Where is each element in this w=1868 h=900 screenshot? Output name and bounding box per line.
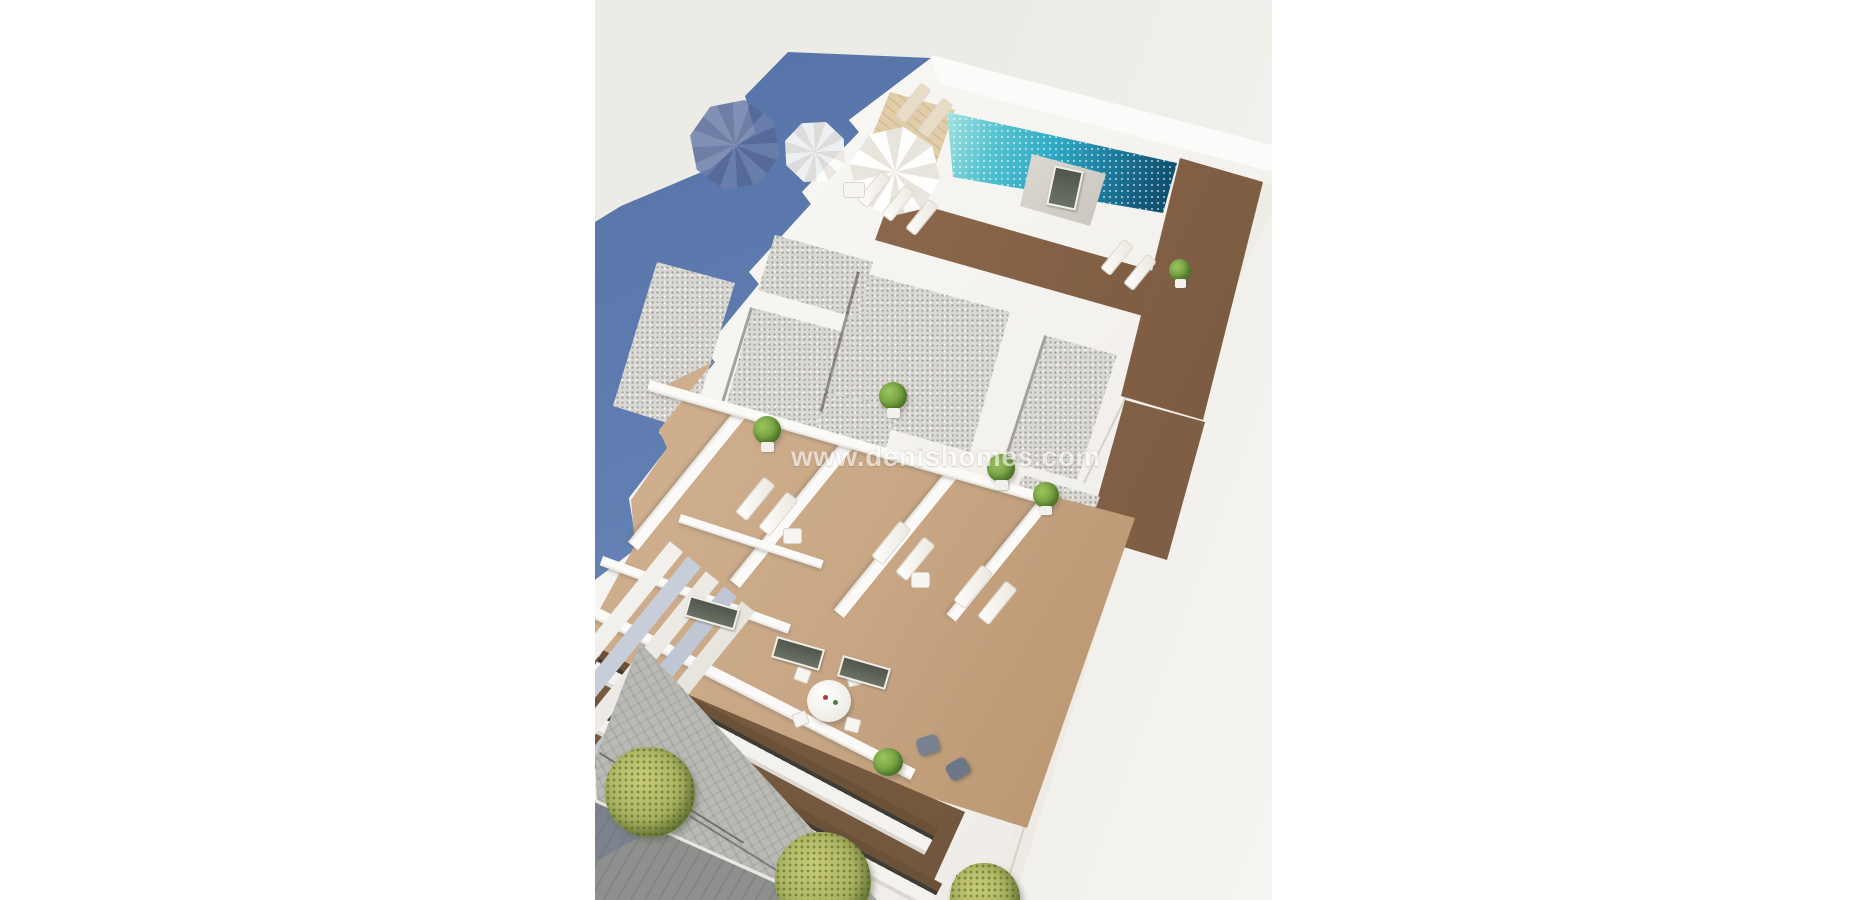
street-tree — [605, 747, 695, 837]
potted-plant — [873, 748, 903, 776]
side-table — [911, 572, 930, 588]
side-table — [843, 182, 865, 198]
plant-pot — [761, 442, 774, 452]
potted-plant — [1169, 259, 1191, 281]
watermark-text: www.denishomes.com — [791, 441, 1101, 473]
table-decor-red — [823, 695, 828, 700]
potted-plant — [753, 416, 781, 444]
side-table — [783, 528, 802, 544]
round-dining-table — [807, 680, 851, 722]
plant-pot — [887, 408, 900, 418]
plant-pot — [1175, 279, 1186, 288]
plant-pot — [995, 480, 1008, 490]
property-render-image: www.denishomes.com — [595, 0, 1272, 900]
plant-pot — [1040, 506, 1052, 515]
potted-plant — [1033, 482, 1059, 508]
page: { "image": { "type": "architectural-3d-r… — [0, 0, 1868, 900]
potted-plant — [879, 382, 907, 410]
table-decor-green — [833, 700, 838, 705]
